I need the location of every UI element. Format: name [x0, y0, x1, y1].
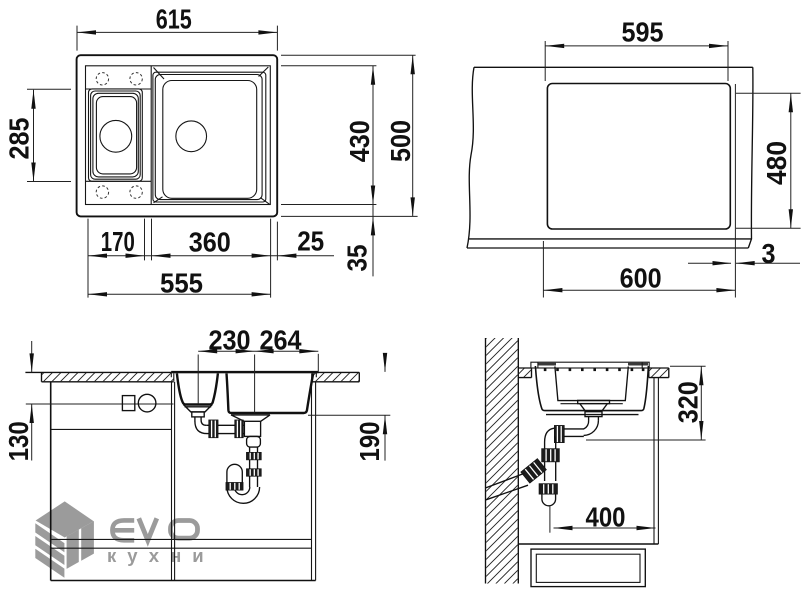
svg-text:264: 264	[260, 325, 302, 356]
svg-text:400: 400	[586, 502, 626, 533]
svg-text:360: 360	[189, 227, 231, 258]
svg-text:615: 615	[156, 3, 192, 34]
svg-text:25: 25	[297, 226, 324, 257]
svg-text:595: 595	[622, 16, 664, 47]
svg-text:3: 3	[762, 238, 776, 269]
svg-text:130: 130	[3, 421, 34, 461]
svg-text:320: 320	[672, 381, 703, 423]
svg-text:190: 190	[354, 422, 385, 462]
svg-text:480: 480	[761, 141, 792, 185]
svg-text:555: 555	[160, 268, 203, 299]
svg-text:230: 230	[209, 325, 251, 356]
svg-text:170: 170	[101, 226, 135, 257]
svg-text:285: 285	[4, 118, 35, 160]
svg-text:600: 600	[620, 263, 662, 294]
svg-text:35: 35	[342, 245, 373, 272]
svg-text:430: 430	[344, 120, 375, 162]
svg-text:500: 500	[385, 120, 416, 162]
